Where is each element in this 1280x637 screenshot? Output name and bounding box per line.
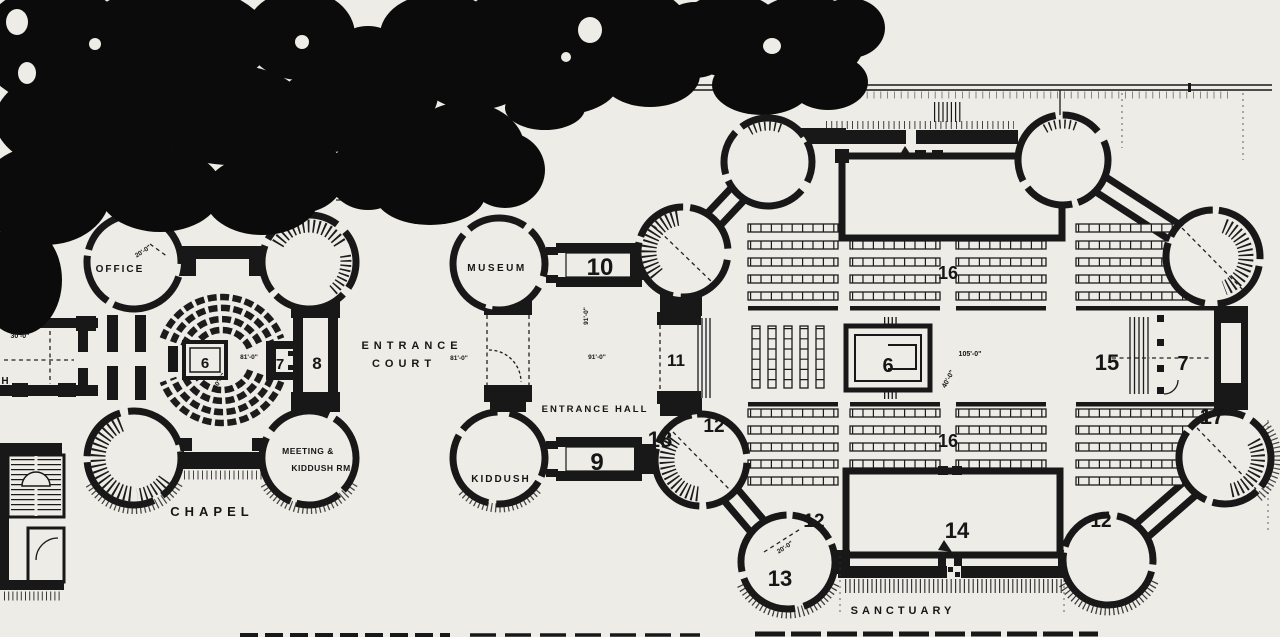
label-num-12-mid: 12 <box>703 416 724 437</box>
label-entrance: ENTRANCE <box>361 340 462 352</box>
label-museum: MUSEUM <box>467 263 526 274</box>
cropped-caption-fragments <box>240 634 1098 635</box>
label-num-7-chapel: 7 <box>276 356 284 373</box>
label-dim-hall-v: 91'-0" <box>583 307 590 325</box>
torah-ark <box>1214 306 1248 410</box>
floor-plan-drawing: 30'-0"HOFFICE20'-0"CHAPELMEETING &KIDDUS… <box>0 0 1280 637</box>
annex-building-fragment <box>0 316 98 596</box>
label-num-14: 14 <box>945 518 970 543</box>
kiddush-tower <box>440 399 558 517</box>
label-annex-cut-label: H <box>1 376 8 387</box>
label-num-11: 11 <box>667 351 685 370</box>
label-dim-annex: 30'-0" <box>11 333 30 340</box>
tower-12-13 <box>730 504 845 619</box>
meeting-room-tower <box>245 394 373 522</box>
chapel-sw-tower <box>72 396 197 521</box>
label-sanctuary: SANCTUARY <box>851 605 956 617</box>
floor-plan-scan: 30'-0"HOFFICE20'-0"CHAPELMEETING &KIDDUS… <box>0 0 1280 637</box>
court-gate <box>484 298 532 412</box>
label-num-7-sanctuary: 7 <box>1177 353 1188 375</box>
label-entrance-hall: ENTRANCE HALL <box>542 404 649 415</box>
label-num-8-chapel: 8 <box>312 354 321 373</box>
label-chapel: CHAPEL <box>170 504 253 519</box>
label-meeting-line1: MEETING & <box>282 446 334 456</box>
label-dim-chapel-w: 81'-0" <box>240 354 258 361</box>
choir-pew-columns <box>752 326 824 388</box>
label-num-10: 10 <box>587 254 614 281</box>
label-num-16-top: 16 <box>938 263 958 283</box>
label-meeting-line2: KIDDUSH RM <box>291 463 350 473</box>
label-num-17: 17 <box>1200 404 1224 429</box>
label-num-18: 18 <box>648 427 672 452</box>
sanctuary-nw-tower <box>706 100 830 224</box>
label-kiddush: KIDDUSH <box>471 474 531 485</box>
label-num-13: 13 <box>768 566 792 591</box>
label-num-9: 9 <box>590 449 603 476</box>
label-num-6-sanctuary: 6 <box>882 355 893 377</box>
label-dim-court: 81'-0" <box>450 355 468 362</box>
label-court: COURT <box>372 358 436 370</box>
label-dim-hall-h: 91'-0" <box>588 354 606 361</box>
label-num-6-chapel: 6 <box>201 355 209 372</box>
label-dim-sanctuary-w: 105'-0" <box>959 351 982 358</box>
label-num-12-br: 12 <box>1090 511 1111 532</box>
label-num-15: 15 <box>1095 350 1119 375</box>
label-dim-sanctuary-h: 40'-0" <box>941 369 956 389</box>
label-num-16-bottom: 16 <box>938 431 958 451</box>
label-office: OFFICE <box>96 264 145 275</box>
label-num-12-bl: 12 <box>803 511 824 532</box>
